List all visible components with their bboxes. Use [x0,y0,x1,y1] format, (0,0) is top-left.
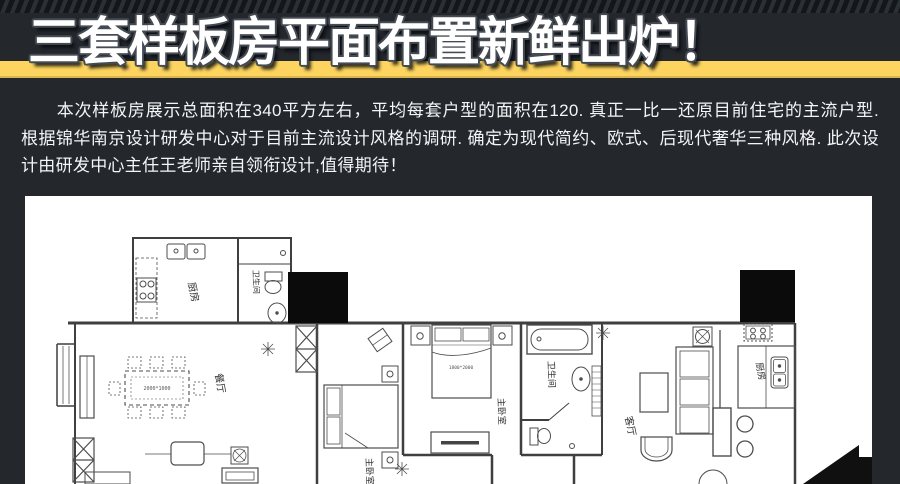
room-label-bath-main: 卫生间 [546,361,558,388]
room-label-living: 客厅 [622,415,639,437]
elevator-shaft-right [740,270,795,322]
room-label-kitchen-top: 厨房 [185,281,202,303]
dining-table-dimension: 2000*1000 [143,386,170,392]
kitchen-right-fixtures [713,324,795,457]
master-bedroom-furniture [411,325,512,453]
floorplan-image: 厨房 卫生间 2000*1000 餐厅 主卧室 [25,196,872,484]
light-symbols [85,326,610,484]
article-page: { "page": { "background_color": "#24282d… [0,0,900,484]
entrance-arrow-icon [803,445,872,484]
room-label-master-bedroom: 主卧室 [496,398,508,425]
floorplan-svg: 厨房 卫生间 2000*1000 餐厅 主卧室 [25,196,872,484]
intro-paragraph: 本次样板房展示总面积在340平方左右，平均每套户型的面积在120. 真正一比一还… [21,97,879,180]
bath-main-fixtures [527,325,601,449]
walls [57,238,795,484]
living-furniture [640,327,727,484]
room-label-dining: 餐厅 [212,372,228,394]
elevator-shaft-left [288,272,348,323]
room-label-bedroom-left: 主卧室 [364,458,376,484]
structural-columns [73,326,317,482]
master-bed-dimension: 1800*2000 [449,365,474,371]
bath-top-fixtures [265,251,286,324]
room-label-bath-top: 卫生间 [251,270,262,294]
page-title: 三套样板房平面布置新鲜出炉！ [28,8,728,81]
bedroom-left-furniture [324,328,398,468]
